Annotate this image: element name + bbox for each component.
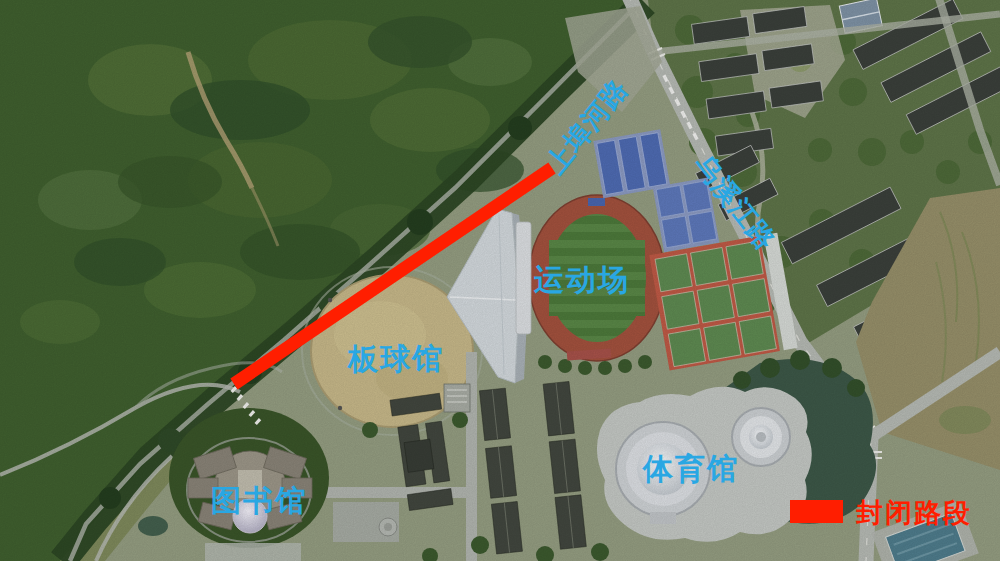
place-label-sports-field: 运动场: [533, 262, 630, 297]
satellite-texture: [0, 0, 1000, 561]
place-label-cricket-hall: 板球馆: [347, 341, 444, 376]
satellite-canvas: 上埠河路 乌溪江路 运动场 板球馆 图书馆 体育馆 封闭路段: [0, 0, 1000, 561]
place-label-gymnasium: 体育馆: [641, 451, 739, 486]
legend-swatch: [790, 500, 843, 523]
place-label-library: 图书馆: [211, 483, 307, 518]
satellite-map: 上埠河路 乌溪江路 运动场 板球馆 图书馆 体育馆 封闭路段: [0, 0, 1000, 561]
legend-label: 封闭路段: [855, 497, 972, 528]
